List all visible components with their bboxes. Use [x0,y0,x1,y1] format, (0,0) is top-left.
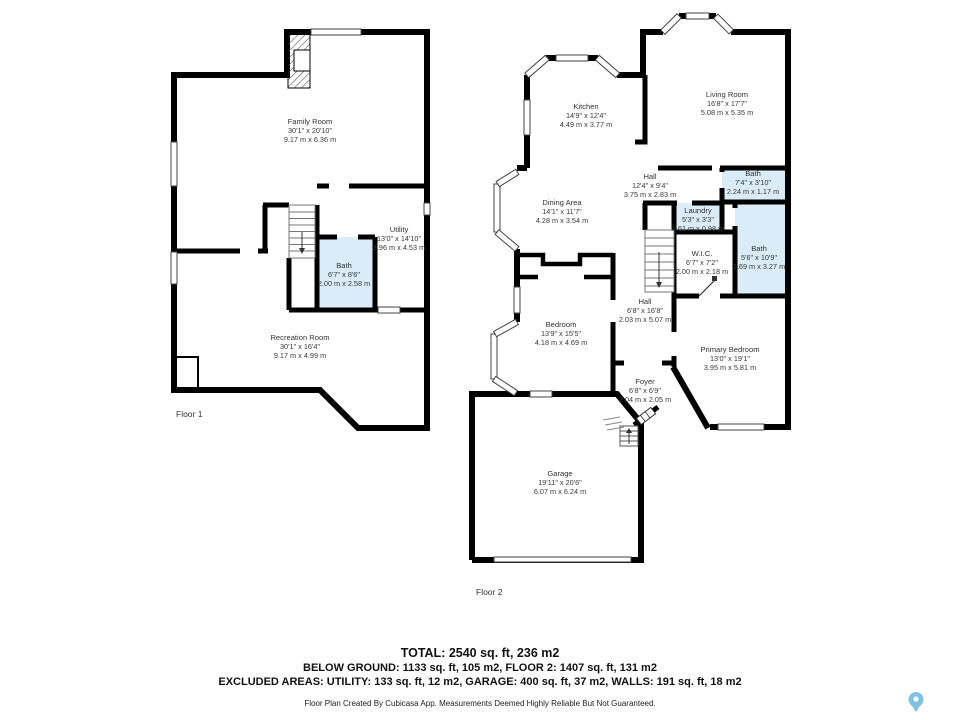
room-name: W.I.C. [692,249,713,258]
room-dim-imperial: 6'8" x 6'9" [629,386,661,395]
room-label-utility: Utility 13'0" x 14'10" 3.96 m x 4.53 m [373,225,425,252]
room-dim-metric: 9.17 m x 4.99 m [274,351,326,360]
room-dim-imperial: 6'7" x 8'6" [328,270,360,279]
room-name: Recreation Room [270,333,329,342]
floor-plan-drawing: Family Room 30'1" x 20'10" 9.17 m x 6.36… [0,0,960,720]
room-dim-imperial: 16'8" x 17'7" [707,99,747,108]
room-dim-metric: 4.49 m x 3.77 m [560,120,612,129]
room-dim-imperial: 14'9" x 12'4" [566,111,606,120]
room-dim-imperial: 6'7" x 7'2" [686,258,718,267]
room-name: Kitchen [573,102,598,111]
room-dim-metric: 2.24 m x 1.17 m [727,187,779,196]
floor2-label: Floor 2 [476,587,503,597]
room-dim-imperial: 7'4" x 3'10" [735,178,771,187]
room-dim-imperial: 5'6" x 10'9" [741,253,777,262]
floor-plan-page: Family Room 30'1" x 20'10" 9.17 m x 6.36… [0,0,960,720]
room-name: Dining Area [542,198,582,207]
room-label-living-room: Living Room 16'8" x 17'7" 5.08 m x 5.35 … [701,90,753,117]
floor1-label: Floor 1 [176,409,203,419]
room-dim-metric: 2.00 m x 2.18 m [676,267,728,276]
room-label-dining-area: Dining Area 14'1" x 11'7" 4.28 m x 3.54 … [536,198,588,225]
room-label-foyer: Foyer 6'8" x 6'9" 2.04 m x 2.05 m [619,377,671,404]
room-dim-metric: 4.18 m x 4.69 m [535,338,587,347]
room-dim-metric: 1.61 m x 0.98 m [672,224,724,233]
room-dim-metric: 5.08 m x 5.35 m [701,108,753,117]
room-dim-imperial: 19'11" x 20'6" [538,478,582,487]
room-name: Hall [643,172,656,181]
room-dim-metric: 1.69 m x 3.27 m [733,262,785,271]
summary-disclaimer: Floor Plan Created By Cubicasa App. Meas… [0,699,960,708]
room-dim-imperial: 30'1" x 20'10" [288,126,332,135]
floor1-stairs [289,205,315,258]
room-name: Bedroom [546,320,577,329]
room-label-family-room: Family Room 30'1" x 20'10" 9.17 m x 6.36… [284,117,336,144]
room-name: Living Room [706,90,748,99]
floor2-stairs [645,230,674,292]
room-dim-metric: 3.75 m x 2.83 m [624,190,676,199]
room-name: Laundry [684,206,712,215]
room-label-hall-mid: Hall 6'8" x 16'8" 2.03 m x 5.07 m [619,297,671,324]
room-label-wic: W.I.C. 6'7" x 7'2" 2.00 m x 2.18 m [676,249,728,276]
room-label-garage: Garage 19'11" x 20'6" 6.07 m x 6.24 m [534,469,586,496]
room-dim-imperial: 13'0" x 14'10" [377,234,421,243]
room-dim-metric: 9.17 m x 6.36 m [284,135,336,144]
floor2-closet-walls [517,255,613,277]
room-dim-metric: 2.04 m x 2.05 m [619,395,671,404]
entry-steps [620,426,638,446]
floor1-plan: Family Room 30'1" x 20'10" 9.17 m x 6.36… [171,29,430,428]
room-name: Garage [547,469,572,478]
room-label-hall-upper: Hall 12'4" x 9'4" 3.75 m x 2.83 m [624,172,676,199]
wic-door [699,276,717,296]
room-dim-imperial: 14'1" x 11'7" [542,207,582,216]
room-name: Bath [745,169,761,178]
floor1-closet-walls [174,357,198,390]
room-name: Primary Bedroom [700,345,759,354]
room-dim-metric: 3.96 m x 4.53 m [373,243,425,252]
room-name: Hall [638,297,651,306]
summary-excluded-areas: EXCLUDED AREAS: UTILITY: 133 sq. ft, 12 … [0,676,960,688]
room-name: Foyer [635,377,655,386]
room-dim-imperial: 6'8" x 16'8" [627,306,663,315]
room-dim-imperial: 30'1" x 16'4" [280,342,320,351]
room-dim-metric: 4.28 m x 3.54 m [536,216,588,225]
front-door [636,407,655,424]
room-dim-imperial: 13'9" x 15'5" [541,329,581,338]
room-name: Bath [336,261,352,270]
room-dim-imperial: 5'3" x 3'3" [682,215,714,224]
room-dim-metric: 2.00 m x 2.58 m [318,279,370,288]
room-name: Bath [751,244,767,253]
floor2-plan: Kitchen 14'9" x 12'4" 4.49 m x 3.77 m Li… [472,13,788,597]
room-dim-metric: 3.95 m x 5.81 m [704,363,756,372]
room-label-bedroom: Bedroom 13'9" x 15'5" 4.18 m x 4.69 m [535,320,587,347]
room-dim-metric: 6.07 m x 6.24 m [534,487,586,496]
room-label-kitchen: Kitchen 14'9" x 12'4" 4.49 m x 3.77 m [560,102,612,129]
summary-total: TOTAL: 2540 sq. ft, 236 m2 [0,646,960,660]
room-dim-imperial: 12'4" x 9'4" [632,181,668,190]
room-label-primary-bedroom: Primary Bedroom 13'0" x 19'1" 3.95 m x 5… [700,345,759,372]
room-label-recreation-room: Recreation Room 30'1" x 16'4" 9.17 m x 4… [270,333,329,360]
summary-below-ground: BELOW GROUND: 1133 sq. ft, 105 m2, FLOOR… [0,662,960,674]
fireplace-firebox [294,50,310,71]
room-name: Utility [390,225,409,234]
room-dim-imperial: 13'0" x 19'1" [710,354,750,363]
room-dim-metric: 2.03 m x 5.07 m [619,315,671,324]
room-name: Family Room [288,117,333,126]
